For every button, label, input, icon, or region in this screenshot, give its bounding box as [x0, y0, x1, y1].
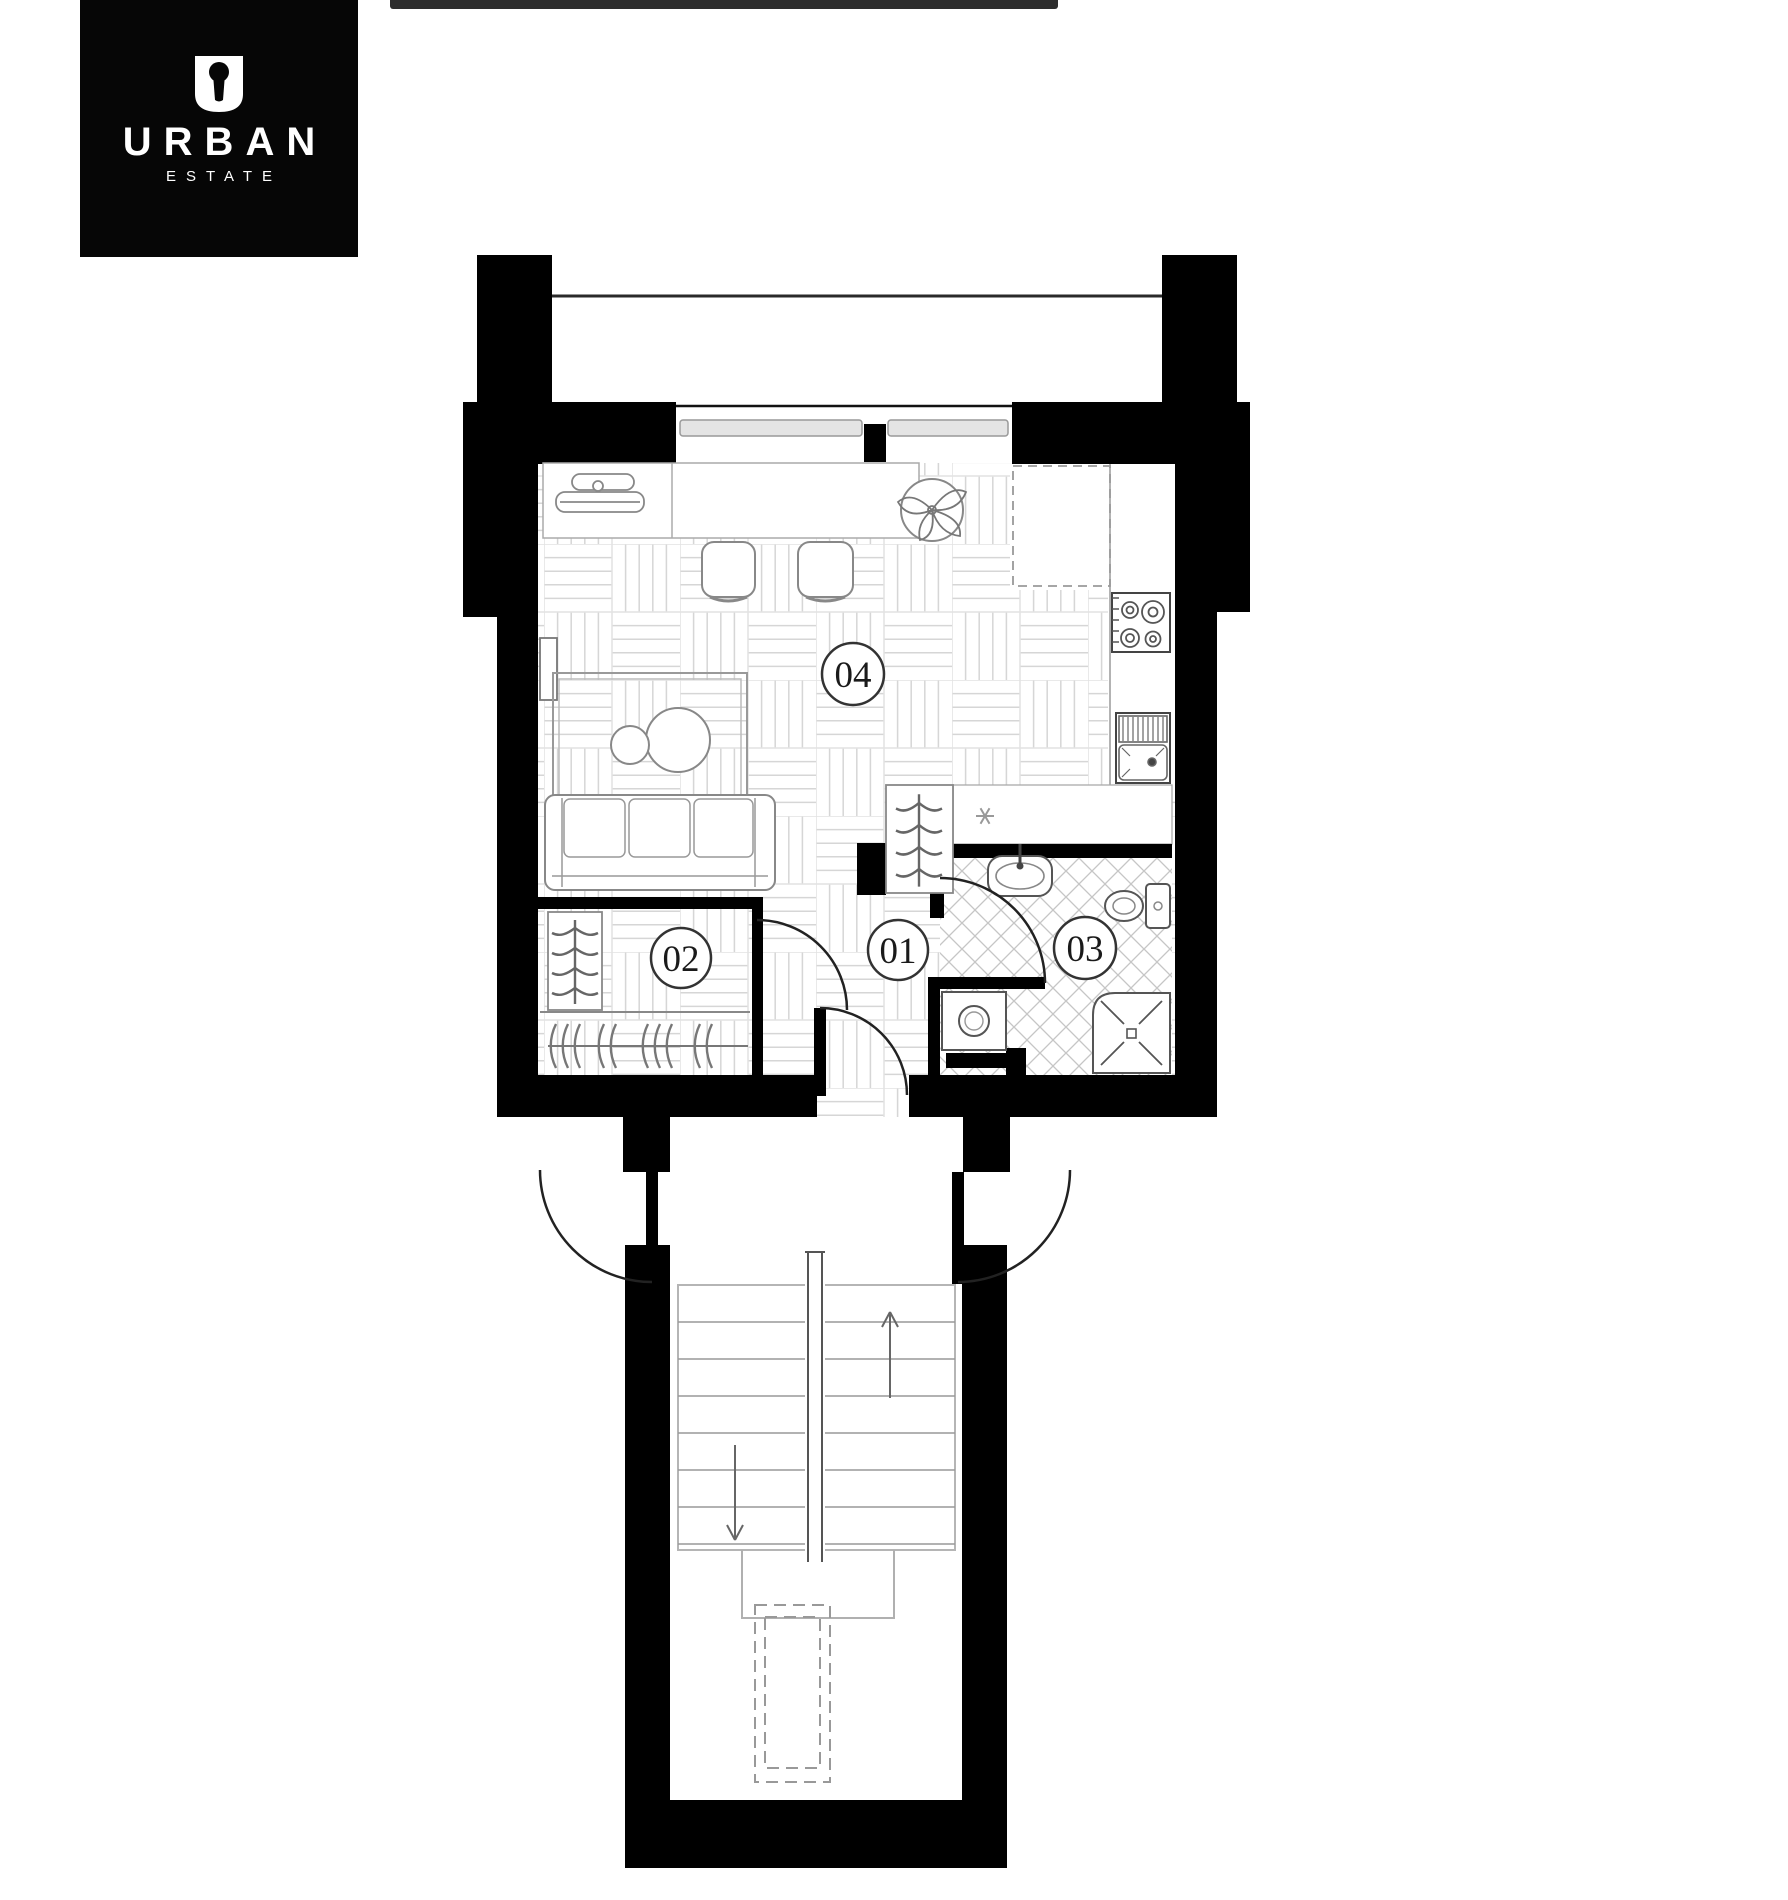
room-label-01: 01: [868, 920, 928, 980]
stair-wall-bottom: [625, 1800, 1007, 1868]
wall-tv: [540, 638, 557, 700]
stove: [1112, 593, 1170, 652]
floor-plan-page: URBAN ESTATE: [0, 0, 1788, 1900]
window: [676, 406, 1012, 436]
stair-wall-right: [962, 1245, 1007, 1805]
desk-and-table: [543, 463, 919, 538]
room-label-04: 04: [822, 643, 884, 705]
floor-plan-svg: 04 02 01 03: [0, 0, 1788, 1900]
stair-wall-left: [625, 1245, 670, 1805]
svg-text:01: 01: [880, 931, 917, 972]
staircase: [678, 1252, 955, 1782]
balcony-pillar-right: [1162, 255, 1237, 403]
arrow-up: [882, 1312, 898, 1398]
room-label-02: 02: [651, 928, 711, 988]
balcony: [552, 296, 1162, 402]
arrow-down: [727, 1445, 743, 1540]
sofa: [545, 795, 775, 890]
window-mullion: [864, 424, 886, 462]
washing-machine: [942, 992, 1006, 1050]
fridge-counter-strip: [953, 785, 1172, 844]
room-label-03: 03: [1054, 917, 1116, 979]
svg-text:04: 04: [835, 655, 872, 696]
elevator-void-dashed: [755, 1605, 830, 1782]
svg-text:02: 02: [663, 939, 700, 980]
kitchen-sink: [1116, 713, 1170, 783]
balcony-pillar-left: [477, 255, 552, 403]
svg-text:03: 03: [1067, 929, 1104, 970]
shower-cabin: [1093, 993, 1170, 1073]
